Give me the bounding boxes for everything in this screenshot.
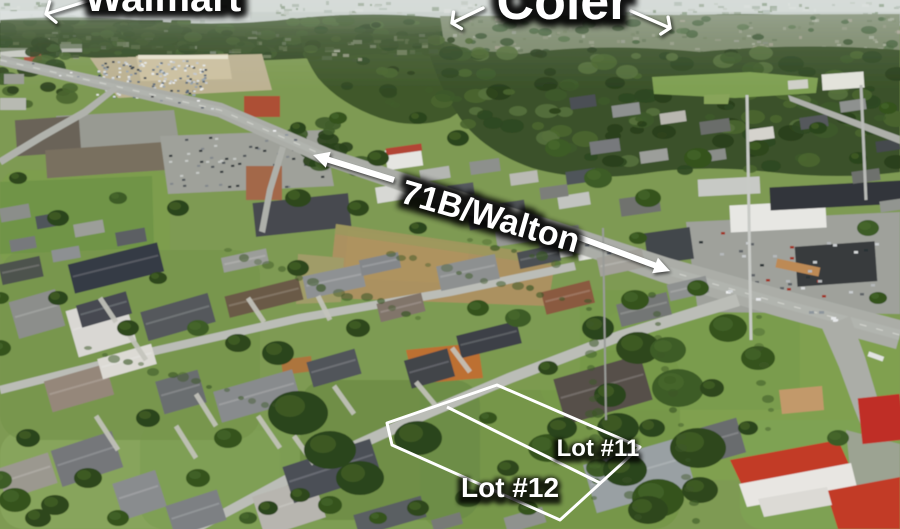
svg-text:Coler: Coler (497, 0, 630, 31)
svg-text:Lot #12: Lot #12 (461, 472, 559, 503)
svg-text:Lot #11: Lot #11 (557, 435, 640, 462)
svg-text:Walmart: Walmart (85, 0, 241, 20)
